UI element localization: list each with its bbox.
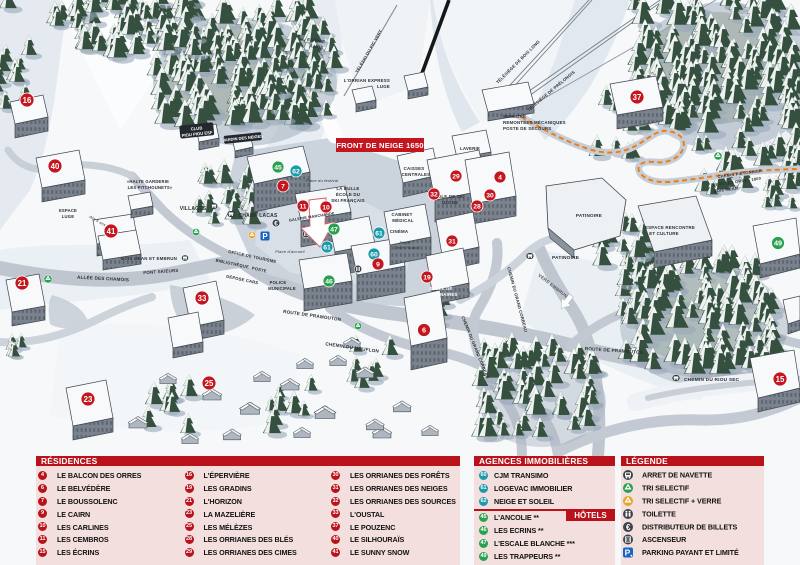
svg-text:Place d'accueil: Place d'accueil [275,249,305,254]
svg-text:60: 60 [370,251,378,258]
svg-text:6: 6 [422,326,426,335]
svg-text:CABINET: CABINET [392,212,413,217]
svg-text:POLICE: POLICE [270,280,287,285]
svg-text:ESPACE: ESPACE [59,208,77,213]
svg-text:REMONTÉES MÉCANIQUES: REMONTÉES MÉCANIQUES [503,120,566,125]
svg-text:P: P [262,232,268,241]
svg-text:15: 15 [776,375,785,384]
svg-text:CENTRALES: CENTRALES [402,172,431,177]
svg-text:CHAMP LACAS: CHAMP LACAS [238,213,278,219]
svg-text:9: 9 [376,261,380,268]
svg-text:LAVERIE: LAVERIE [460,146,480,151]
svg-text:SALLE DE: SALLE DE [429,286,452,291]
svg-text:POSTE DE SECOURS: POSTE DE SECOURS [503,126,551,131]
svg-text:ÉCOLE DU: ÉCOLE DU [336,192,360,197]
svg-text:€: € [626,523,631,532]
svg-text:SÉMINAIRES: SÉMINAIRES [428,292,457,297]
svg-text:CHEMIN DU RIOU SEC: CHEMIN DU RIOU SEC [684,377,740,383]
svg-text:LES PITCHOUNETS»: LES PITCHOUNETS» [128,185,173,190]
svg-text:TOILETTE: TOILETTE [642,510,676,519]
svg-text:BOIS MEAN ET EMBRUN: BOIS MEAN ET EMBRUN [121,256,177,261]
svg-text:LUGE: LUGE [377,84,390,89]
svg-text:MÉDICAL: MÉDICAL [392,218,414,223]
svg-text:P: P [625,548,631,558]
svg-text:PATINOIRE: PATINOIRE [552,255,580,261]
svg-text:SEMLORE: SEMLORE [503,114,526,119]
svg-text:ET CULTURE: ET CULTURE [649,231,678,236]
svg-text:32: 32 [430,191,438,198]
svg-text:37: 37 [633,93,642,102]
svg-text:11: 11 [299,203,306,210]
svg-text:49: 49 [774,239,782,248]
svg-text:45: 45 [274,164,282,171]
svg-text:Place du festival: Place du festival [306,178,339,183]
svg-text:LUGE: LUGE [62,214,74,219]
svg-text:23: 23 [84,395,93,404]
svg-text:47: 47 [330,226,338,233]
svg-text:46: 46 [325,278,333,285]
svg-text:61: 61 [375,230,383,237]
svg-text:SKI FRANÇAIS: SKI FRANÇAIS [331,198,365,203]
svg-text:4: 4 [498,174,502,181]
svg-text:30: 30 [486,192,494,199]
svg-text:ASCENSEUR: ASCENSEUR [642,535,687,544]
svg-text:ESPACE RENCONTRE: ESPACE RENCONTRE [645,225,695,230]
svg-text:L'ORRIAN EXPRESS: L'ORRIAN EXPRESS [344,78,390,83]
svg-text:29: 29 [452,173,460,180]
svg-text:25: 25 [205,379,214,388]
svg-text:31: 31 [448,238,456,245]
svg-text:10: 10 [322,204,330,211]
svg-text:«HALTE GARDERIE: «HALTE GARDERIE [127,179,169,184]
svg-text:41: 41 [107,227,116,236]
svg-text:28: 28 [473,203,481,210]
svg-text:ARRET DE NAVETTE: ARRET DE NAVETTE [642,471,712,480]
svg-text:33: 33 [198,294,207,303]
svg-text:CAISSES: CAISSES [404,166,425,171]
svg-text:OZONE: OZONE [442,200,459,205]
svg-text:21: 21 [18,279,27,288]
svg-text:PARKING PAYANT ET LIMITÉ: PARKING PAYANT ET LIMITÉ [642,548,739,557]
svg-text:16: 16 [23,96,32,105]
svg-text:LA BULLE: LA BULLE [336,186,359,191]
svg-text:62: 62 [292,168,300,175]
svg-text:61: 61 [323,244,331,251]
svg-text:TRI SELECTIF + VERRE: TRI SELECTIF + VERRE [642,497,722,506]
svg-text:19: 19 [423,274,431,281]
svg-text:Emile Hodoul: Emile Hodoul [394,245,420,250]
svg-text:TRI SELECTIF: TRI SELECTIF [642,484,690,493]
svg-text:DISTRIBUTEUR DE BILLETS: DISTRIBUTEUR DE BILLETS [642,523,737,532]
svg-text:CINÉMA: CINÉMA [390,229,409,234]
svg-text:FRONT DE NEIGE 1650: FRONT DE NEIGE 1650 [336,141,423,150]
svg-text:PATINOIRE: PATINOIRE [576,213,602,218]
svg-text:40: 40 [51,162,60,171]
svg-text:7: 7 [281,183,285,190]
svg-text:VILLAGES: VILLAGES [180,206,207,212]
svg-text:MUNICIPALE: MUNICIPALE [268,286,296,291]
svg-text:€: € [274,221,278,228]
